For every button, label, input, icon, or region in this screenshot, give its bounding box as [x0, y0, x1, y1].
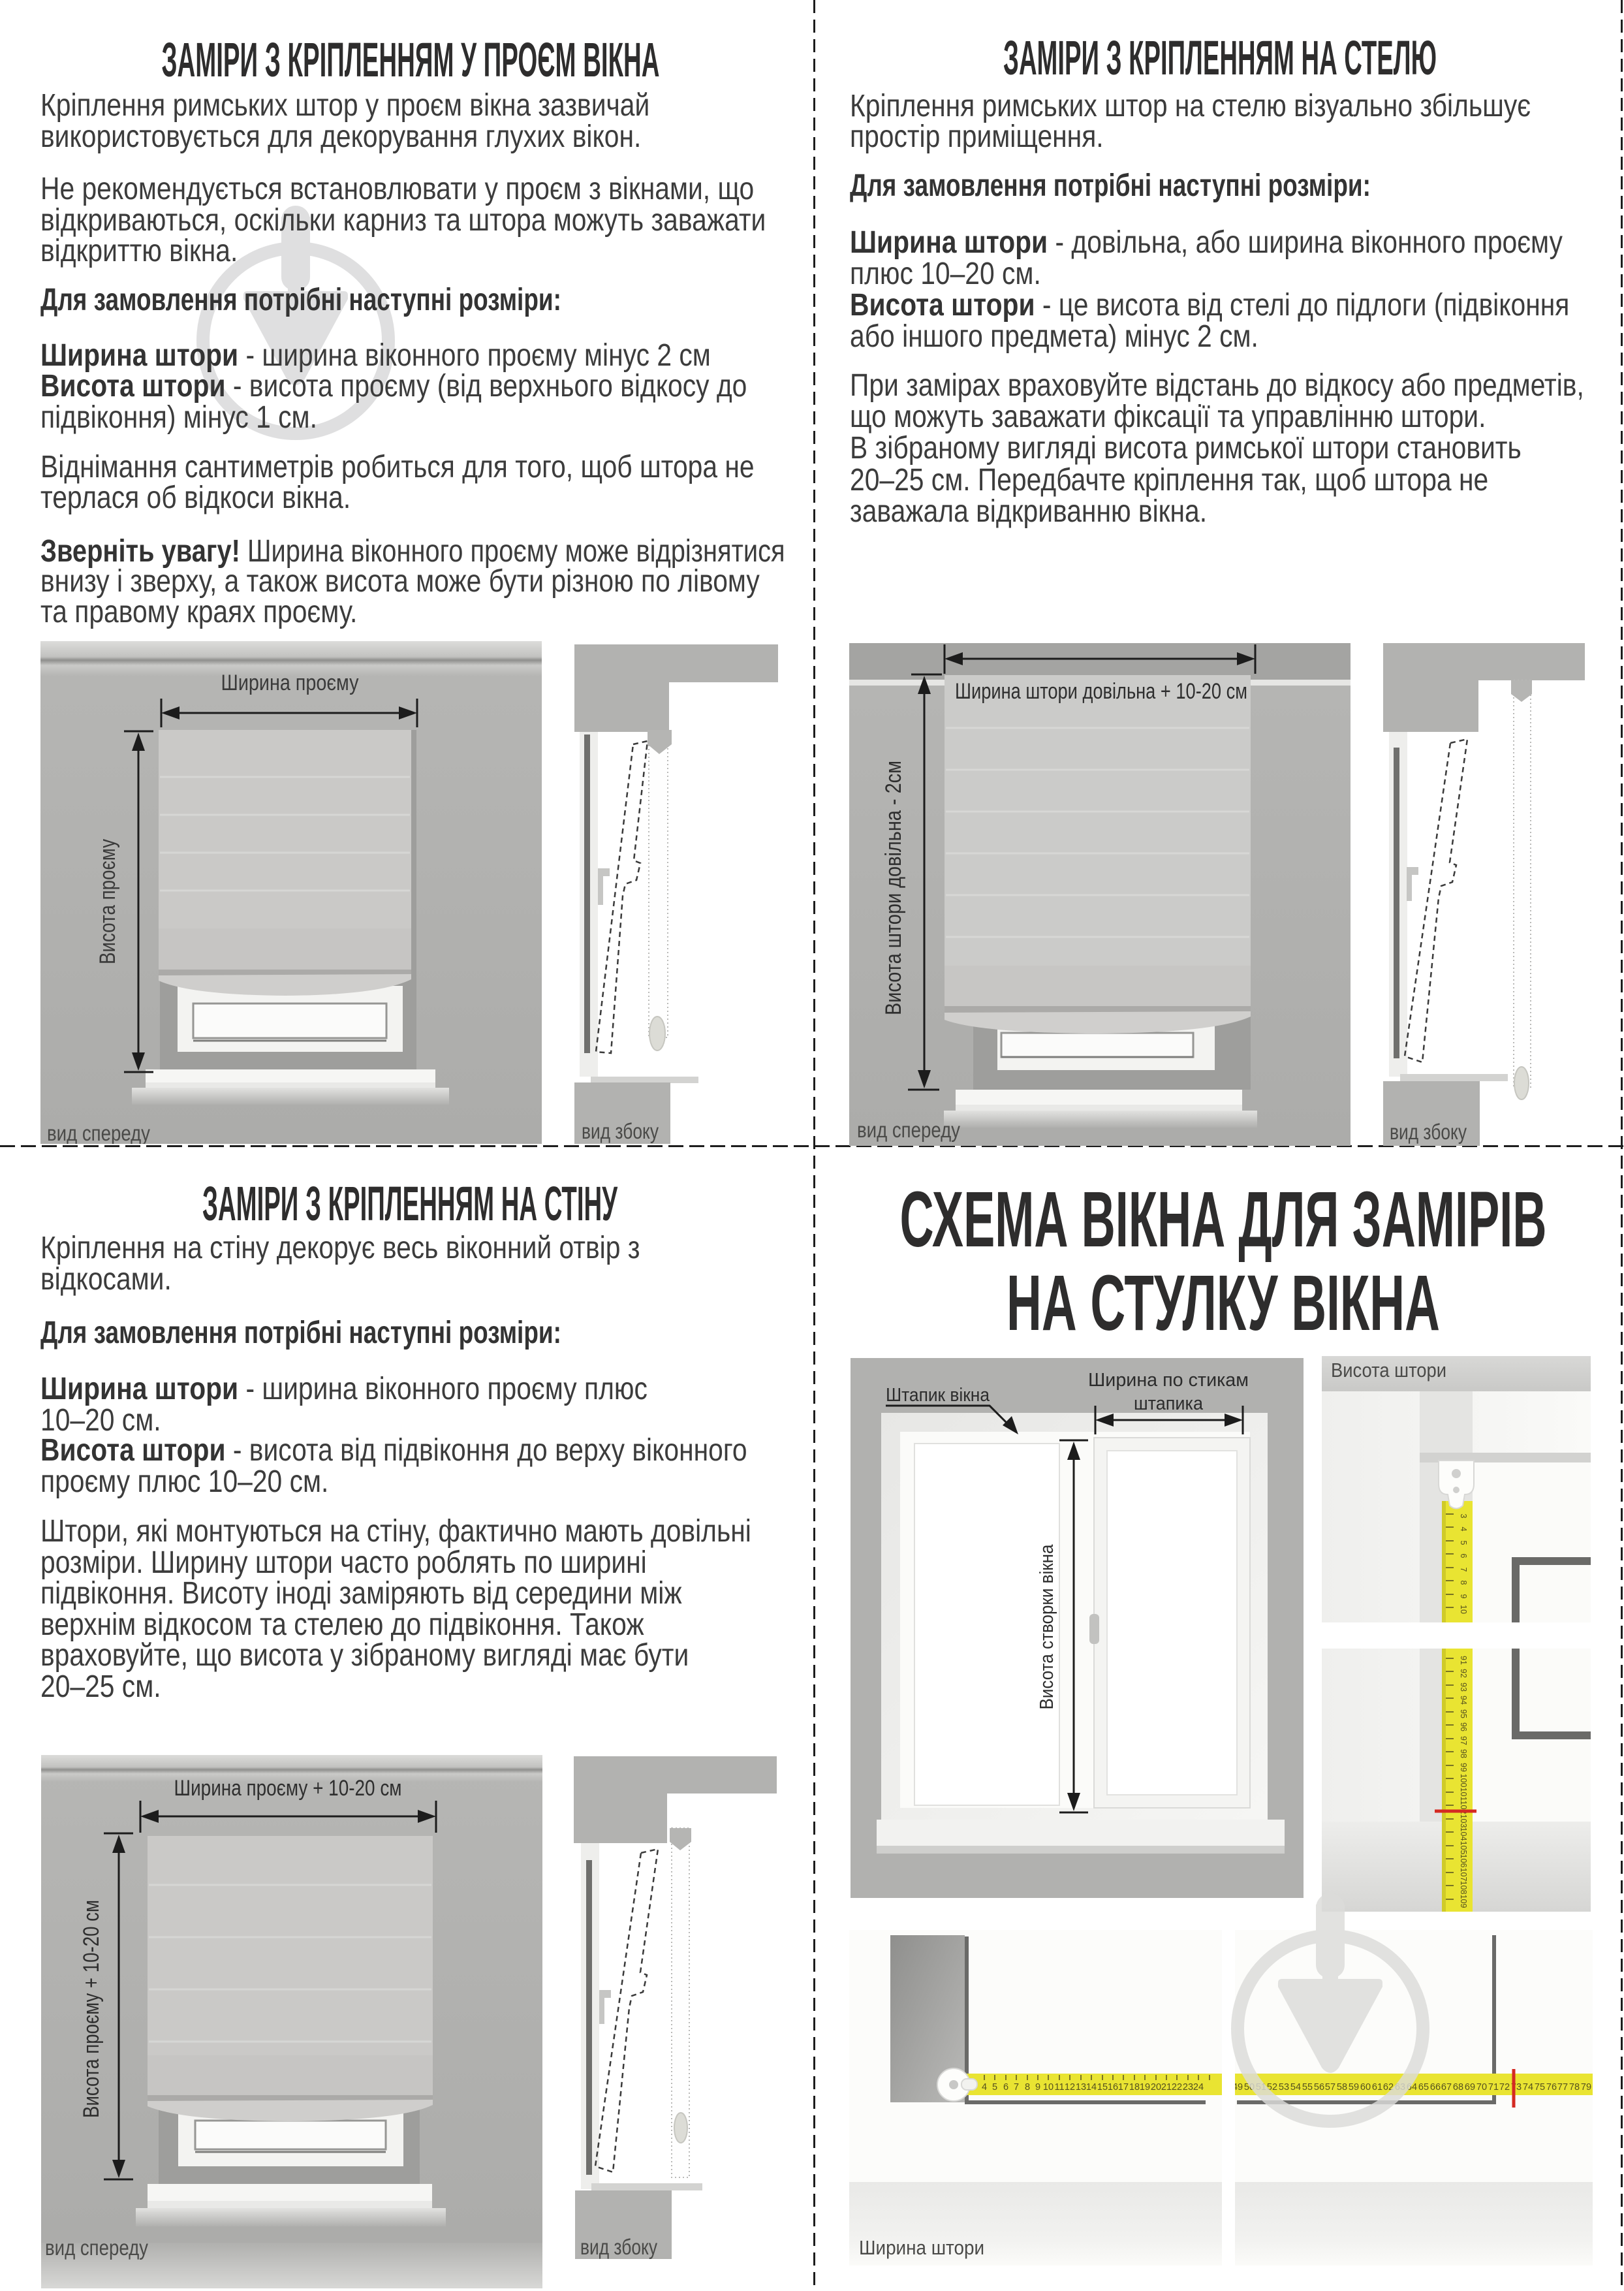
svg-text:вид збоку: вид збоку [582, 1119, 659, 1143]
svg-text:НА СТУЛКУ ВІКНА: НА СТУЛКУ ВІКНА [1007, 1258, 1440, 1347]
svg-text:78: 78 [1569, 2082, 1580, 2093]
svg-text:Штапик вікна: Штапик вікна [886, 1385, 990, 1406]
svg-text:вид спереду: вид спереду [857, 1118, 960, 1142]
svg-text:5: 5 [1459, 1541, 1468, 1545]
svg-text:СХЕМА ВІКНА ДЛЯ ЗАМІРІВ: СХЕМА ВІКНА ДЛЯ ЗАМІРІВ [900, 1175, 1547, 1263]
svg-text:12: 12 [1065, 2082, 1075, 2093]
svg-text:7: 7 [1014, 2082, 1019, 2093]
svg-text:21: 21 [1161, 2082, 1172, 2093]
svg-text:105: 105 [1459, 1841, 1468, 1855]
svg-text:107: 107 [1459, 1868, 1468, 1882]
svg-text:6: 6 [1459, 1554, 1468, 1558]
svg-text:15: 15 [1097, 2082, 1108, 2093]
svg-text:108: 108 [1459, 1881, 1468, 1895]
svg-text:4: 4 [982, 2082, 987, 2093]
svg-text:19: 19 [1140, 2082, 1150, 2093]
svg-text:13: 13 [1076, 2082, 1086, 2093]
svg-text:Ширина проєму: Ширина проєму [221, 671, 359, 695]
svg-text:93: 93 [1459, 1683, 1468, 1692]
svg-text:16: 16 [1108, 2082, 1118, 2093]
svg-text:Ширина штори: Ширина штори [859, 2236, 984, 2259]
svg-text:9: 9 [1035, 2082, 1040, 2093]
svg-text:91: 91 [1459, 1656, 1468, 1665]
svg-text:Висота створки вікна: Висота створки вікна [1037, 1544, 1057, 1710]
svg-text:Ширина проєму + 10-20 см: Ширина проєму + 10-20 см [174, 1776, 402, 1801]
svg-text:вид збоку: вид збоку [1390, 1120, 1467, 1144]
svg-text:14: 14 [1086, 2082, 1097, 2093]
svg-text:Висота штори довільна - 2см: Висота штори довільна - 2см [881, 761, 906, 1015]
svg-text:8: 8 [1459, 1581, 1468, 1585]
svg-text:24: 24 [1193, 2082, 1204, 2093]
svg-text:Ширина по стикам: Ширина по стикам [1088, 1370, 1249, 1391]
svg-text:22: 22 [1172, 2082, 1182, 2093]
svg-text:17: 17 [1118, 2082, 1129, 2093]
svg-text:штапика: штапика [1134, 1393, 1204, 1414]
svg-text:Висота штори: Висота штори [1331, 1359, 1446, 1382]
svg-text:67: 67 [1441, 2082, 1452, 2093]
svg-text:10: 10 [1043, 2082, 1054, 2093]
svg-text:8: 8 [1025, 2082, 1030, 2093]
svg-text:вид збоку: вид збоку [580, 2235, 657, 2259]
svg-text:98: 98 [1459, 1749, 1468, 1758]
svg-text:74: 74 [1523, 2082, 1533, 2093]
svg-text:5: 5 [992, 2082, 997, 2093]
svg-text:вид спереду: вид спереду [45, 2236, 148, 2260]
svg-text:106: 106 [1459, 1854, 1468, 1868]
svg-text:109: 109 [1459, 1895, 1468, 1908]
svg-text:ЗАМІРИ З КРІПЛЕННЯМ У ПРОЄМ ВІ: ЗАМІРИ З КРІПЛЕННЯМ У ПРОЄМ ВІКНА [162, 33, 660, 87]
svg-text:79: 79 [1581, 2082, 1591, 2093]
svg-text:23: 23 [1183, 2082, 1193, 2093]
svg-text:76: 76 [1546, 2082, 1557, 2093]
svg-text:69: 69 [1465, 2082, 1475, 2093]
svg-text:6: 6 [1003, 2082, 1008, 2093]
svg-text:75: 75 [1535, 2082, 1545, 2093]
svg-text:72: 72 [1499, 2082, 1510, 2093]
svg-text:70: 70 [1476, 2082, 1487, 2093]
svg-text:99: 99 [1459, 1763, 1468, 1772]
svg-text:68: 68 [1453, 2082, 1463, 2093]
svg-text:77: 77 [1557, 2082, 1568, 2093]
svg-text:18: 18 [1129, 2082, 1140, 2093]
svg-text:96: 96 [1459, 1722, 1468, 1731]
svg-text:Ширина штори довільна + 10-20: Ширина штори довільна + 10-20 см [955, 679, 1247, 704]
svg-text:101: 101 [1459, 1788, 1468, 1801]
svg-text:4: 4 [1459, 1527, 1468, 1532]
svg-text:95: 95 [1459, 1709, 1468, 1718]
svg-text:Висота проєму + 10-20 см: Висота проєму + 10-20 см [79, 1900, 104, 2118]
svg-text:20: 20 [1151, 2082, 1161, 2093]
svg-text:104: 104 [1459, 1827, 1468, 1841]
svg-text:11: 11 [1054, 2082, 1064, 2093]
svg-text:10: 10 [1459, 1605, 1468, 1614]
svg-text:ЗАМІРИ З КРІПЛЕННЯМ НА СТІНУ: ЗАМІРИ З КРІПЛЕННЯМ НА СТІНУ [202, 1177, 617, 1231]
svg-text:7: 7 [1459, 1568, 1468, 1572]
svg-text:97: 97 [1459, 1736, 1468, 1745]
svg-text:71: 71 [1488, 2082, 1499, 2093]
svg-text:3: 3 [1459, 1514, 1468, 1519]
svg-text:92: 92 [1459, 1669, 1468, 1678]
svg-text:103: 103 [1459, 1814, 1468, 1828]
svg-text:Висота проєму: Висота проєму [95, 839, 120, 964]
svg-text:9: 9 [1459, 1594, 1468, 1599]
svg-text:100: 100 [1459, 1774, 1468, 1788]
svg-text:вид спереду: вид спереду [47, 1121, 150, 1144]
svg-text:94: 94 [1459, 1696, 1468, 1705]
svg-text:ЗАМІРИ З КРІПЛЕННЯМ НА СТЕЛЮ: ЗАМІРИ З КРІПЛЕННЯМ НА СТЕЛЮ [1003, 31, 1437, 85]
